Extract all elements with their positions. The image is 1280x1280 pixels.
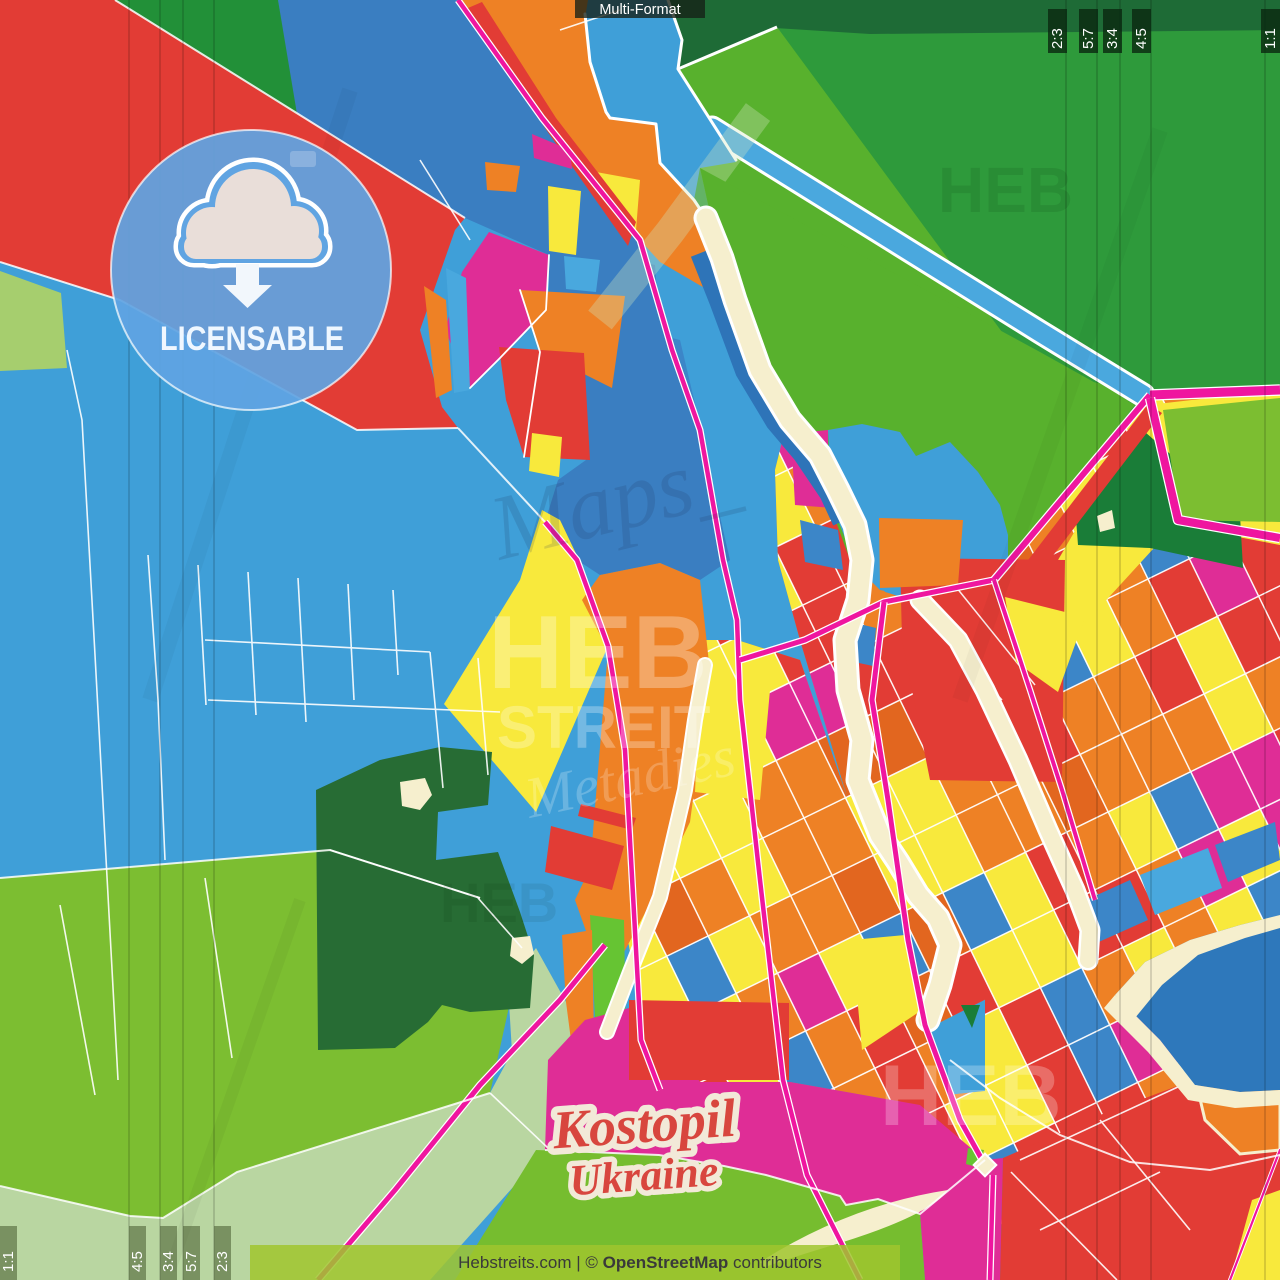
svg-text:5:7: 5:7: [183, 1251, 200, 1272]
svg-text:LICENSABLE: LICENSABLE: [160, 320, 344, 358]
svg-text:Multi-Format: Multi-Format: [599, 2, 680, 18]
svg-text:HEB: HEB: [880, 1048, 1062, 1144]
svg-text:2:3: 2:3: [214, 1251, 231, 1272]
svg-text:HEB: HEB: [440, 871, 558, 934]
svg-text:5:7: 5:7: [1080, 28, 1097, 49]
svg-text:4:5: 4:5: [1133, 28, 1150, 49]
svg-text:1:1: 1:1: [1262, 28, 1279, 49]
svg-text:2:3: 2:3: [1049, 28, 1066, 49]
svg-text:3:4: 3:4: [1104, 28, 1121, 49]
svg-text:3:4: 3:4: [160, 1251, 177, 1272]
svg-text:4:5: 4:5: [129, 1251, 146, 1272]
svg-text:Ukraine: Ukraine: [568, 1146, 720, 1205]
svg-text:Hebstreits.com | © OpenStreetM: Hebstreits.com | © OpenStreetMap contrib…: [458, 1253, 822, 1272]
svg-text:HEB: HEB: [938, 154, 1073, 226]
svg-text:1:1: 1:1: [0, 1251, 17, 1272]
